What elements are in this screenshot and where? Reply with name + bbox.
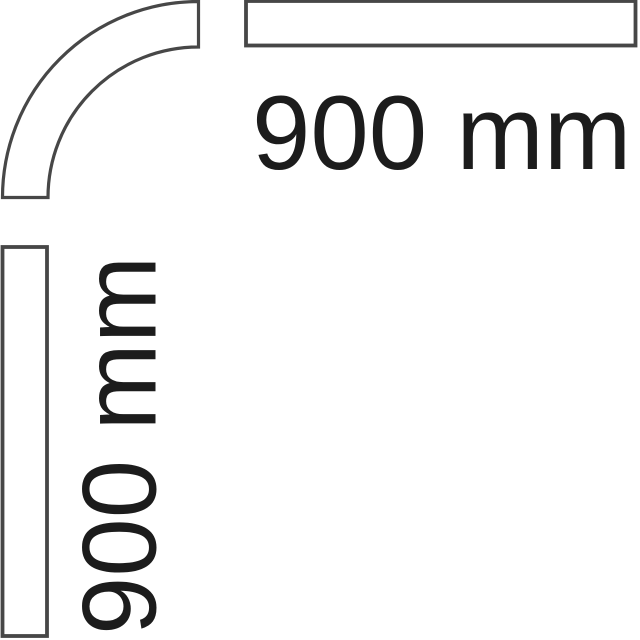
svg-text:900 mm: 900 mm — [62, 256, 179, 635]
svg-text:900 mm: 900 mm — [252, 75, 631, 192]
